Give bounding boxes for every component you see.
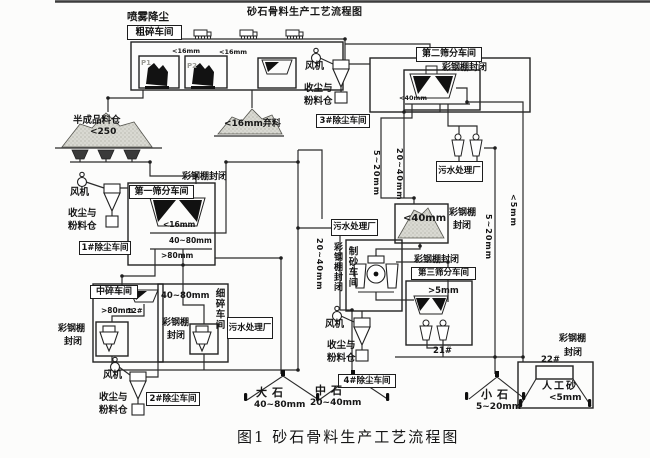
dust-bin-label-1a: 收尘与 — [68, 209, 97, 220]
fan-label-3: 风机 — [305, 62, 324, 73]
coarse-fines-label-1: <16mm — [172, 48, 200, 55]
steel-shed-label-finecrush-2: 封闭 — [167, 331, 185, 341]
sand-washer-icon — [437, 320, 449, 340]
steel-shed-label-finecrush-1: 彩钢棚 — [162, 318, 189, 328]
steel-shed-label-sandpile-2: 封闭 — [564, 348, 582, 358]
dust-bin-label-2b: 粉料仓 — [99, 406, 128, 417]
sand-washer-icon — [420, 320, 432, 340]
semi-bin-size-label: <250 — [90, 128, 116, 138]
feeder-icons — [72, 150, 140, 159]
screen2-fine-label: <40mm — [399, 95, 427, 102]
sand-washer-icon — [452, 134, 464, 156]
belt-21-label: 21# — [433, 347, 452, 356]
screening-workshop-3-label: 第三筛分车间 — [411, 267, 476, 280]
flow-label-20-40-a: 20~40mm — [395, 148, 403, 201]
process-flow-diagram: 砂石骨料生产工艺流程图 喷雾降尘 粗碎车间 P1 P2 <16mm <16mm … — [0, 0, 650, 458]
product-sand-size: <5mm — [549, 394, 582, 404]
screen1-mid-label: 40~80mm — [169, 237, 212, 245]
screening-workshop-2-label: 第二筛分车间 — [416, 47, 482, 62]
cyclone-separator-icon — [333, 60, 349, 103]
sand-making-workshop-label: 制砂车间 — [347, 246, 357, 288]
fan-label-1: 风机 — [70, 188, 89, 199]
dust-workshop-1-label: 1#除尘车间 — [79, 241, 131, 255]
sewage-plant-label-1: 污水处理厂 — [227, 317, 273, 339]
screen3-oversize-label: >5mm — [428, 287, 459, 296]
steel-shed-label-sandplant: 彩钢棚封闭 — [332, 242, 341, 292]
coarse-crushing-workshop-label: 粗碎车间 — [127, 25, 182, 40]
sewage-plant-label-3: 污水处理厂 — [436, 161, 483, 182]
flow-label-5-20-b: 5~20mm — [484, 214, 492, 260]
figure-caption: 图1 砂石骨料生产工艺流程图 — [237, 429, 459, 446]
medium-crushing-workshop-label: 中碎车间 — [90, 285, 138, 299]
dust-bin-label-2a: 收尘与 — [99, 393, 128, 404]
dust-bin-label-4a: 收尘与 — [327, 341, 356, 352]
cyclone-separator-icon — [130, 372, 146, 415]
belt-12-label: 12# — [127, 308, 143, 316]
screen1-fine-label: <16mm — [163, 221, 195, 229]
dust-bin-label-3b: 粉料仓 — [304, 97, 333, 108]
product-big-stone-label: 大石 — [256, 387, 288, 400]
product-mid-stone-size: 20~40mm — [310, 399, 361, 409]
fine-crushing-workshop-label: 细碎车间 — [214, 288, 224, 330]
steel-shed-label-midpile-1: 彩钢棚 — [449, 208, 476, 218]
vibrating-screen-icon — [414, 296, 448, 314]
steel-shed-label-midpile-2: 封闭 — [453, 221, 471, 231]
product-small-stone-label: 小石 — [481, 389, 513, 402]
cyclone-separator-icon — [354, 318, 370, 361]
screening-workshop-1-label: 第一筛分车间 — [129, 185, 194, 199]
fan-icon — [78, 172, 87, 186]
flow-label-lt5: <5mm — [509, 194, 517, 227]
dust-bin-label-1b: 粉料仓 — [68, 222, 97, 233]
truck-icon — [194, 30, 211, 39]
cone-crusher-icons — [100, 326, 211, 351]
waste-pile-label: <16mm弃料 — [224, 119, 281, 129]
jaw-crusher-icons — [145, 63, 215, 89]
vibrating-screen-icon — [262, 60, 292, 74]
flow-label-5-20-a: 5~20mm — [372, 150, 380, 196]
product-mid-stone-label: 中石 — [315, 385, 347, 398]
diagram-title: 砂石骨料生产工艺流程图 — [247, 7, 363, 19]
product-sand-label: 人工砂 — [542, 381, 578, 393]
steel-shed-label-screen2: 彩钢棚封闭 — [442, 63, 487, 73]
fan-label-4: 风机 — [325, 320, 344, 331]
sand-mill-icon — [354, 256, 398, 292]
sand-washer-icon — [470, 134, 482, 156]
screen1-big-label: >80mm — [161, 252, 193, 260]
crusher-p2-tag: P2 — [187, 63, 197, 71]
steel-shed-label-midcrush-2: 封闭 — [64, 337, 82, 347]
crusher-p1-tag: P1 — [141, 60, 151, 68]
belt-22-label: 22# — [541, 356, 560, 365]
fine-crush-feed-label: 40~80mm — [161, 292, 210, 301]
semi-bin-label: 半成品料仓 — [73, 116, 121, 127]
coarse-fines-label-2: <16mm — [219, 49, 247, 56]
mid-stockpile-label: <40mm — [403, 213, 446, 224]
dust-workshop-3-label: 3#除尘车间 — [316, 114, 370, 128]
cone-crusher-icon — [100, 326, 118, 351]
sewage-plant-label-2: 污水处理厂 — [331, 219, 378, 236]
spray-dust-label: 喷雾降尘 — [127, 11, 169, 23]
flow-label-20-40-b: 20~40mm — [315, 238, 323, 291]
dust-workshop-2-label: 2#除尘车间 — [146, 392, 200, 406]
product-big-stone-size: 40~80mm — [254, 401, 305, 411]
cone-crusher-icon — [193, 326, 211, 351]
steel-shed-label-midcrush-1: 彩钢棚 — [58, 324, 85, 334]
truck-icon — [240, 30, 257, 39]
steel-shed-label-screen3: 彩钢棚封闭 — [414, 255, 459, 265]
fan-label-2: 风机 — [103, 371, 122, 382]
steel-shed-label-sandpile-1: 彩钢棚 — [559, 334, 586, 344]
dust-bin-label-3a: 收尘与 — [304, 84, 333, 95]
product-small-stone-size: 5~20mm — [476, 403, 521, 413]
cyclone-separator-icon — [104, 184, 120, 227]
dust-bin-label-4b: 粉料仓 — [327, 354, 356, 365]
steel-shed-label-screen1: 彩钢棚封闭 — [182, 172, 227, 182]
truck-icon — [286, 30, 303, 39]
